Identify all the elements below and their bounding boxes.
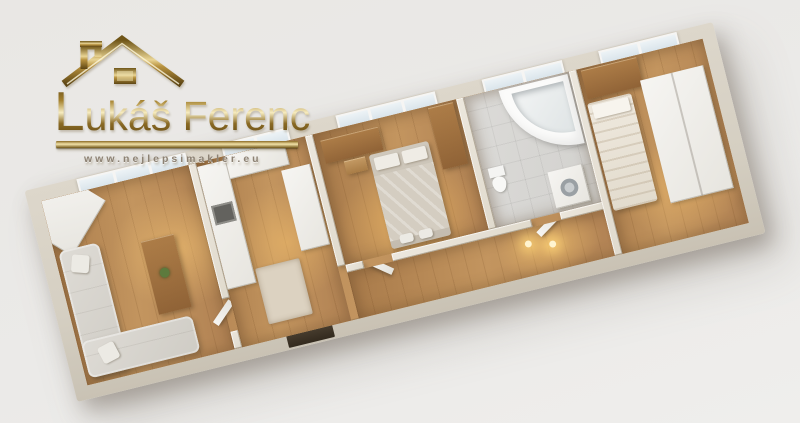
bed-foot-pillow (418, 228, 434, 240)
brand-rest: ukáš Ferenc (85, 93, 311, 139)
washing-machine (547, 164, 591, 209)
wardrobe-seam (671, 73, 704, 196)
wooden-cabinet (581, 57, 644, 99)
brand-name: Lukáš Ferenc (54, 84, 312, 139)
chair (344, 156, 368, 175)
bed-blanket (374, 162, 450, 242)
washer-door (559, 177, 581, 198)
gold-underline-bar (56, 141, 298, 148)
floorplan-stage: Lukáš Ferenc www.nejlepsimakler.eu (0, 0, 800, 423)
bed-pillow (592, 97, 632, 119)
white-wardrobe (640, 65, 734, 203)
website-url: www.nejlepsimakler.eu (84, 153, 312, 165)
ceiling-spotlight (524, 240, 532, 248)
brand-initial: L (54, 80, 85, 142)
throw-pillow (71, 254, 90, 273)
toilet-bowl (491, 175, 508, 194)
bed-foot-pillow (399, 232, 415, 244)
double-bed (369, 141, 452, 250)
ceiling-spotlight (549, 240, 557, 248)
rug (255, 258, 313, 324)
bed-pillow (401, 146, 428, 164)
bathtub-basin (511, 81, 575, 144)
bed-pillow (373, 152, 400, 170)
open-door (366, 257, 394, 275)
watermark-logo: Lukáš Ferenc www.nejlepsimakler.eu (50, 28, 312, 165)
